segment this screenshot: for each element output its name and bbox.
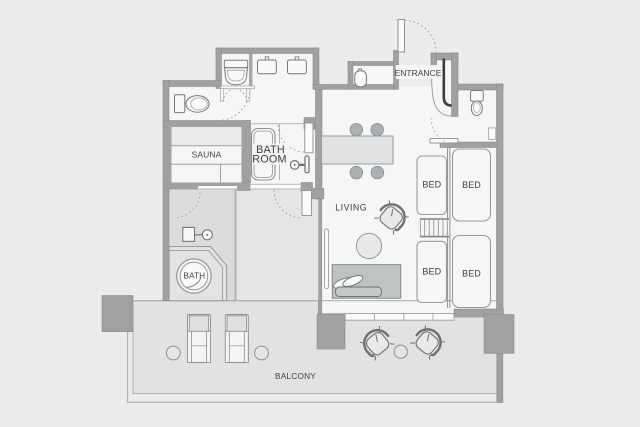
svg-text:ROOM: ROOM [252,154,286,166]
svg-text:BED: BED [422,180,441,190]
svg-text:BED: BED [462,269,481,279]
svg-text:BED: BED [422,267,441,277]
svg-text:BALCONY: BALCONY [275,371,316,381]
svg-text:BED: BED [462,180,481,190]
svg-text:LIVING: LIVING [335,203,367,213]
svg-text:SAUNA: SAUNA [192,150,222,160]
svg-text:ENTRANCE: ENTRANCE [395,68,442,78]
svg-text:BATH: BATH [183,270,205,280]
